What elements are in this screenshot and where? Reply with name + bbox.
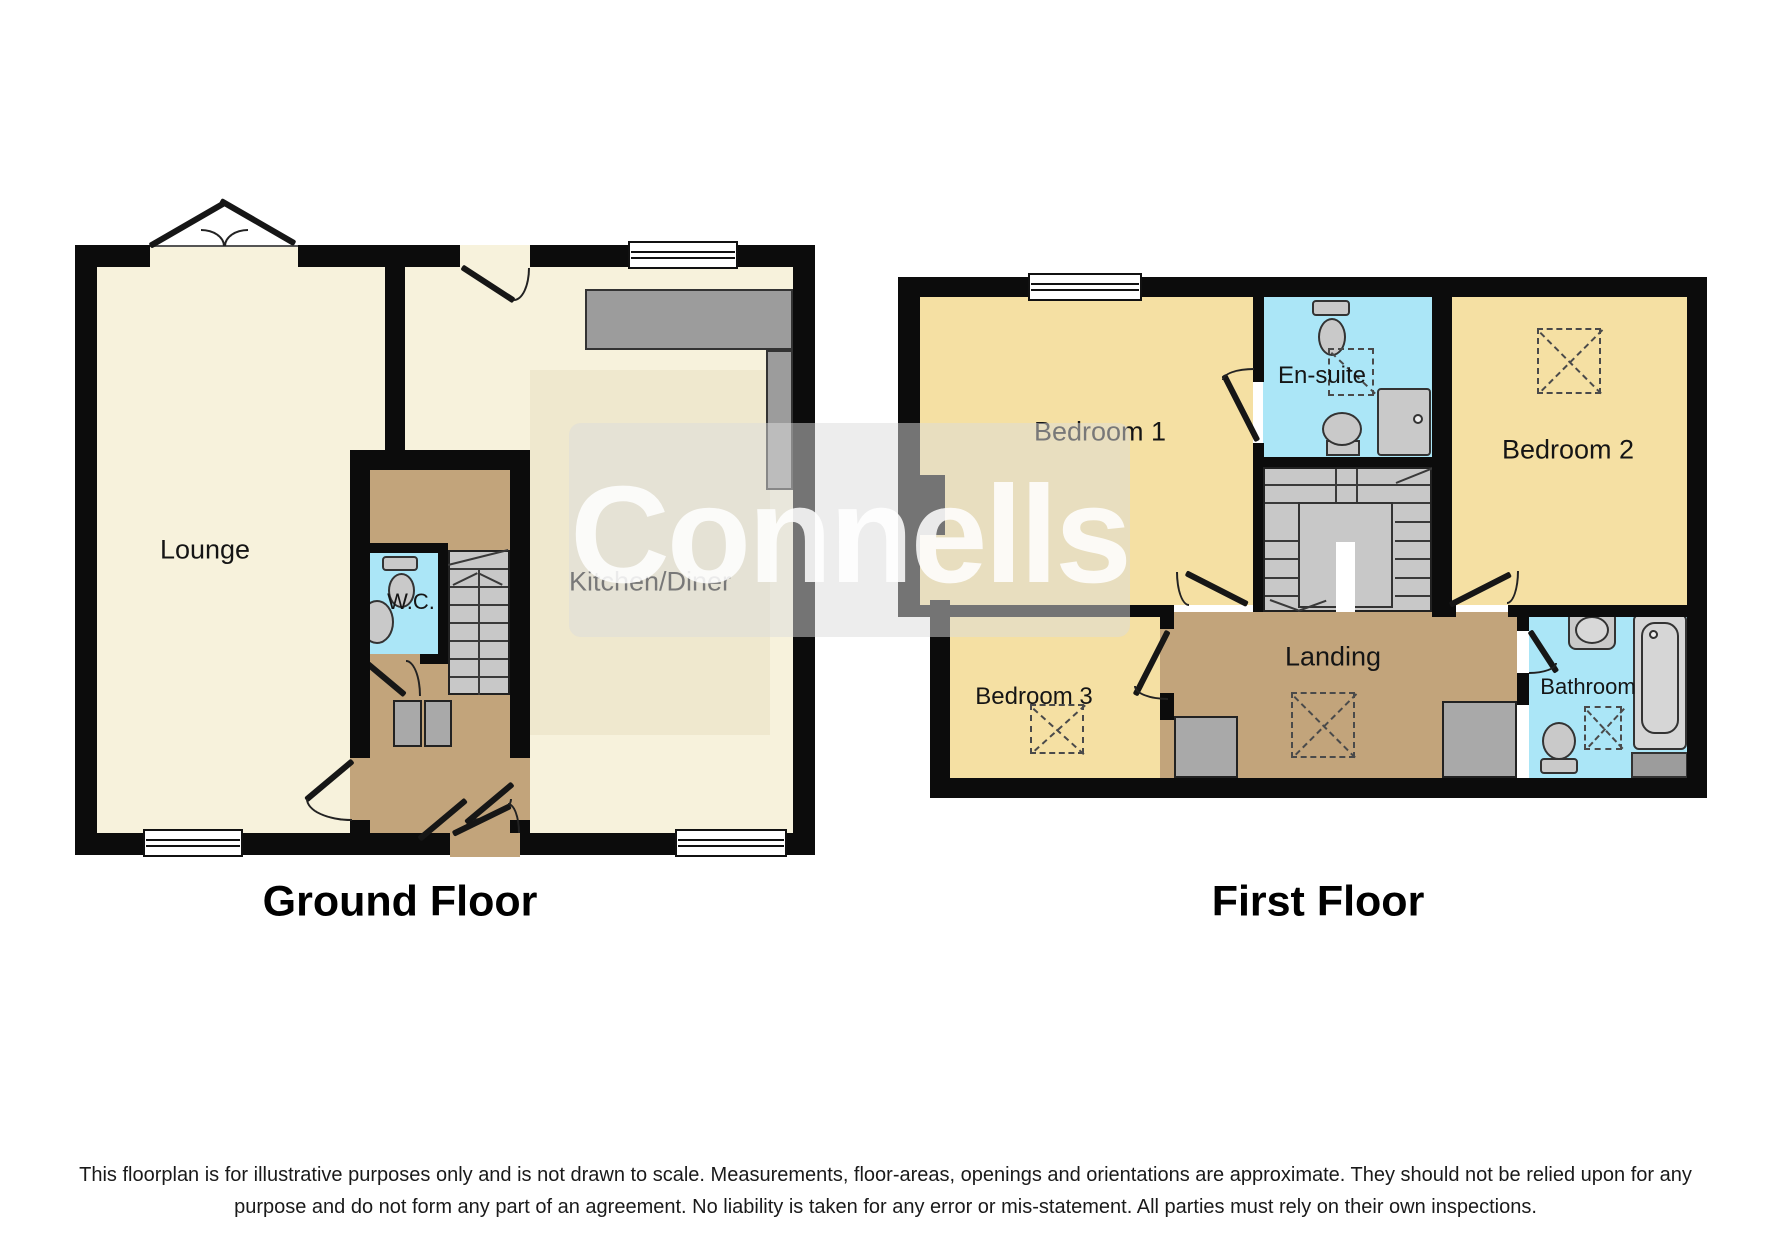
wall: [1432, 297, 1452, 617]
french-door-arc: [224, 229, 248, 246]
wall: [1517, 673, 1529, 705]
stair-tread: [1395, 595, 1430, 597]
bedroom3-label: Bedroom 3: [975, 683, 1092, 711]
bathtub-base: [1631, 752, 1688, 778]
toilet-icon: [1540, 758, 1578, 774]
stair-center-line: [478, 568, 480, 695]
wall: [1253, 467, 1263, 612]
ground-floor-title: Ground Floor: [263, 878, 538, 927]
wardrobe-cross-line: [1541, 329, 1603, 391]
wardrobe-box: [1537, 328, 1601, 394]
stair-tread: [1265, 540, 1298, 542]
wall: [1517, 617, 1529, 631]
toilet-icon: [1312, 300, 1350, 316]
wall: [1253, 297, 1264, 382]
understair-cupboard: [424, 700, 452, 747]
cupboard: [1174, 716, 1238, 778]
stair-tread: [1265, 484, 1430, 486]
landing-label: Landing: [1285, 642, 1381, 673]
ensuite-label: En-suite: [1278, 362, 1366, 390]
wardrobe-box: [1291, 692, 1355, 758]
toilet-icon: [1542, 722, 1576, 760]
wall: [1687, 277, 1707, 797]
stair-tread: [1395, 558, 1430, 560]
french-door-opening: [150, 245, 298, 267]
wall: [1160, 605, 1174, 629]
wall: [350, 820, 370, 833]
bathtub-drain-icon: [1649, 630, 1658, 639]
shower-drain-icon: [1413, 414, 1423, 424]
wardrobe-cross-line: [1033, 708, 1085, 755]
kitchen-counter-top: [585, 289, 793, 350]
window: [628, 241, 738, 269]
kitchen-back-door-opening: [460, 245, 530, 267]
wardrobe-cross-line: [1295, 693, 1357, 755]
wc-label: W.C.: [387, 589, 435, 615]
lounge-hall-opening: [350, 758, 370, 820]
wardrobe-cross-line: [1588, 708, 1625, 747]
airing-cupboard: [1442, 701, 1517, 778]
stair-tread: [1395, 540, 1430, 542]
wall: [1253, 457, 1443, 467]
window: [1028, 273, 1142, 301]
wall: [420, 654, 448, 664]
toilet-icon: [382, 556, 418, 571]
wardrobe-box: [1030, 704, 1084, 754]
disclaimer-line-2: purpose and do not form any part of an a…: [0, 1196, 1771, 1219]
shower-icon: [1377, 388, 1431, 456]
wall: [930, 778, 1707, 798]
first-floor-title: First Floor: [1212, 878, 1425, 927]
sink-icon: [1322, 412, 1362, 446]
wall: [1508, 605, 1707, 617]
stair-tread: [1335, 469, 1337, 502]
wardrobe-box: [1584, 706, 1622, 750]
wall: [438, 543, 448, 654]
wall: [75, 267, 97, 855]
stair-tread: [1265, 558, 1298, 560]
stair-tread: [1356, 469, 1358, 502]
french-door-arc: [201, 229, 225, 246]
understair-cupboard: [393, 700, 422, 747]
window: [143, 829, 243, 857]
stair-tread: [1265, 577, 1298, 579]
disclaimer-line-1: This floorplan is for illustrative purpo…: [0, 1164, 1771, 1187]
entrance-opening: [450, 833, 520, 855]
wall: [385, 267, 405, 450]
bathroom-label: Bathroom: [1540, 674, 1635, 700]
window: [675, 829, 787, 857]
lounge-label: Lounge: [160, 535, 250, 566]
bathtub-icon: [1641, 622, 1679, 734]
wall: [350, 450, 530, 470]
stair-tread: [1395, 577, 1430, 579]
sink-icon: [1575, 616, 1609, 644]
stair-tread: [1265, 595, 1298, 597]
wall: [350, 470, 370, 758]
watermark-logo: Connells: [569, 455, 1130, 615]
wall: [898, 277, 1707, 297]
bedroom2-label: Bedroom 2: [1502, 435, 1634, 466]
stair-gap: [1336, 542, 1355, 612]
wardrobe-cross-line: [1034, 704, 1086, 751]
floorplan-page: Lounge Kitchen/Diner W.C.: [0, 0, 1771, 1240]
wall: [510, 470, 530, 758]
stair-tread: [1395, 521, 1430, 523]
